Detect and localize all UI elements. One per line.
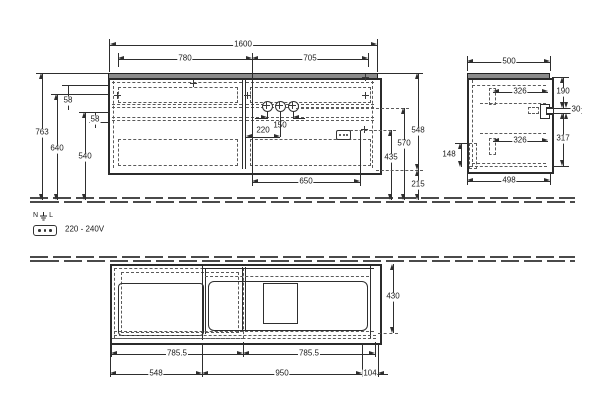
extension-line <box>377 39 378 72</box>
dim-label-570: 570 <box>396 140 411 149</box>
dim-label-30: 30 <box>571 106 582 115</box>
cross-mark <box>244 92 251 99</box>
dim-label-498: 498 <box>501 177 516 186</box>
extension-line <box>550 172 551 185</box>
extension-line <box>280 111 281 137</box>
arrowhead <box>111 351 117 355</box>
drawer-box-dashed <box>118 139 238 166</box>
arrowhead <box>261 115 267 119</box>
arrowhead <box>39 73 43 79</box>
cross-mark <box>362 74 369 81</box>
dashed-line <box>470 166 547 167</box>
arrowhead <box>54 194 58 200</box>
arrowhead <box>493 138 499 142</box>
center-divider <box>242 80 243 169</box>
arrowhead <box>118 56 124 60</box>
arrowhead <box>493 89 499 93</box>
basin-edge <box>202 266 203 340</box>
hatch-row <box>30 197 575 199</box>
arrowhead <box>560 77 564 83</box>
dim-label-190: 190 <box>555 88 570 97</box>
arrowhead <box>369 351 375 355</box>
dim-label-215: 215 <box>410 181 425 190</box>
cross-mark <box>190 80 197 87</box>
arrowhead <box>293 115 299 119</box>
socket-strip-icon <box>33 225 57 236</box>
dim-label-950: 950 <box>274 370 289 379</box>
extension-line <box>252 53 253 186</box>
arrowhead <box>371 42 377 46</box>
dashed-line <box>112 82 242 83</box>
dashed-line <box>472 163 546 164</box>
arrowhead <box>110 42 116 46</box>
hatch-row <box>30 256 575 258</box>
arrowhead <box>390 327 394 333</box>
ground-icon <box>39 212 48 223</box>
drawer-gap-line <box>112 120 242 121</box>
floor-hatch-line <box>30 197 575 203</box>
cross-mark <box>289 102 296 109</box>
dashed-line <box>480 133 546 134</box>
arrowhead <box>415 170 419 176</box>
dim-label-104: 104 <box>362 370 377 379</box>
extension-line <box>550 56 551 71</box>
arrowhead <box>252 179 258 183</box>
basin-edge <box>205 268 206 334</box>
dim-label-500: 500 <box>501 58 516 67</box>
panel-dashed-line <box>372 81 373 168</box>
technical-drawing: 1600 780 705 763 640 58 58 540 <box>0 0 600 415</box>
extension-line <box>360 130 361 186</box>
terminal-labels: N L <box>33 212 59 223</box>
dim-label-430: 430 <box>385 293 400 302</box>
arrowhead <box>354 179 360 183</box>
arrowhead <box>458 143 462 149</box>
voltage-label: 220 - 240V <box>64 226 105 235</box>
hatch-row <box>30 260 575 262</box>
dim-label-705: 705 <box>302 55 317 64</box>
extension-line <box>368 53 369 67</box>
line-label: L <box>49 212 53 219</box>
arrowhead <box>560 113 564 119</box>
extension-line <box>552 166 569 167</box>
arrowhead <box>544 178 550 182</box>
drawer-box-dashed <box>118 87 238 103</box>
drawer-outline <box>118 283 204 336</box>
cross-mark <box>114 92 121 99</box>
arrowhead <box>252 56 258 60</box>
dashed-line <box>114 331 374 332</box>
dim-label-650: 650 <box>298 178 313 187</box>
wall-hatch-line <box>30 256 575 262</box>
arrowhead <box>274 134 280 138</box>
arrowhead <box>401 194 405 200</box>
side-panel-cutout <box>469 143 477 169</box>
arrowhead <box>415 73 419 79</box>
extension-line <box>375 342 376 357</box>
cross-mark <box>362 92 369 99</box>
arrowhead <box>54 94 58 100</box>
dim-label-1600: 1600 <box>233 41 253 50</box>
arrowhead <box>243 351 249 355</box>
dashed-line <box>205 276 369 277</box>
dim-label-317: 317 <box>555 135 570 144</box>
dim-line <box>404 108 405 200</box>
arrowhead <box>39 194 43 200</box>
arrowhead <box>564 102 568 108</box>
dim-label-58: 58 <box>90 116 101 125</box>
extension-line <box>51 94 108 95</box>
arrowhead <box>564 113 568 119</box>
dim-label-780: 780 <box>177 55 192 64</box>
arrowhead <box>82 112 86 118</box>
hatch-row <box>30 201 575 203</box>
arrowhead <box>542 138 548 142</box>
arrowhead <box>246 134 252 138</box>
neutral-label: N <box>33 212 38 219</box>
dashed-line <box>112 107 242 108</box>
dim-label-58: 58 <box>63 97 74 106</box>
arrowhead <box>388 194 392 200</box>
socket-outlet-icon <box>336 130 351 140</box>
dashed-line <box>246 82 374 83</box>
basin-back-edge <box>202 268 374 269</box>
dim-label-220: 220 <box>255 127 270 136</box>
dim-label-640: 640 <box>49 145 64 154</box>
dashed-line <box>112 338 376 339</box>
dim-label-548: 548 <box>148 370 163 379</box>
dashed-line <box>472 85 546 86</box>
arrowhead <box>362 56 368 60</box>
extension-line <box>36 73 108 74</box>
extension-line <box>378 333 398 334</box>
dim-label-326: 326 <box>512 137 527 146</box>
arrowhead <box>415 194 419 200</box>
arrowhead <box>82 194 86 200</box>
dashed-line <box>114 335 376 336</box>
arrowhead <box>467 178 473 182</box>
dim-line <box>391 130 392 200</box>
arrowhead <box>544 59 550 63</box>
cross-mark <box>263 102 270 109</box>
arrowhead <box>467 59 473 63</box>
dim-label-548: 548 <box>410 127 425 136</box>
arrowhead <box>388 130 392 136</box>
dim-label-785.5: 785.5 <box>298 350 320 359</box>
arrowhead <box>390 264 394 270</box>
drawer-box-dashed <box>250 139 371 166</box>
extension-line <box>296 108 409 109</box>
dim-label-435: 435 <box>383 154 398 163</box>
drawer-gap-line <box>112 117 242 118</box>
drawer-gap-line <box>246 120 374 121</box>
arrowhead <box>458 161 462 167</box>
arrowhead <box>401 108 405 114</box>
dim-label-785.5: 785.5 <box>166 350 188 359</box>
bracket-dashed-box <box>528 107 539 114</box>
arrowhead <box>202 371 208 375</box>
dim-label-326: 326 <box>512 88 527 97</box>
cross-mark <box>276 102 283 109</box>
dim-label-148: 148 <box>441 151 456 160</box>
arrowhead <box>542 89 548 93</box>
basin-edge <box>370 266 371 339</box>
dim-label-763: 763 <box>34 129 49 138</box>
dim-label-540: 540 <box>77 153 92 162</box>
dashed-line <box>112 104 242 105</box>
arrowhead <box>378 371 384 375</box>
siphon-recess <box>263 283 298 324</box>
arrowhead <box>110 371 116 375</box>
extension-line <box>267 111 268 119</box>
